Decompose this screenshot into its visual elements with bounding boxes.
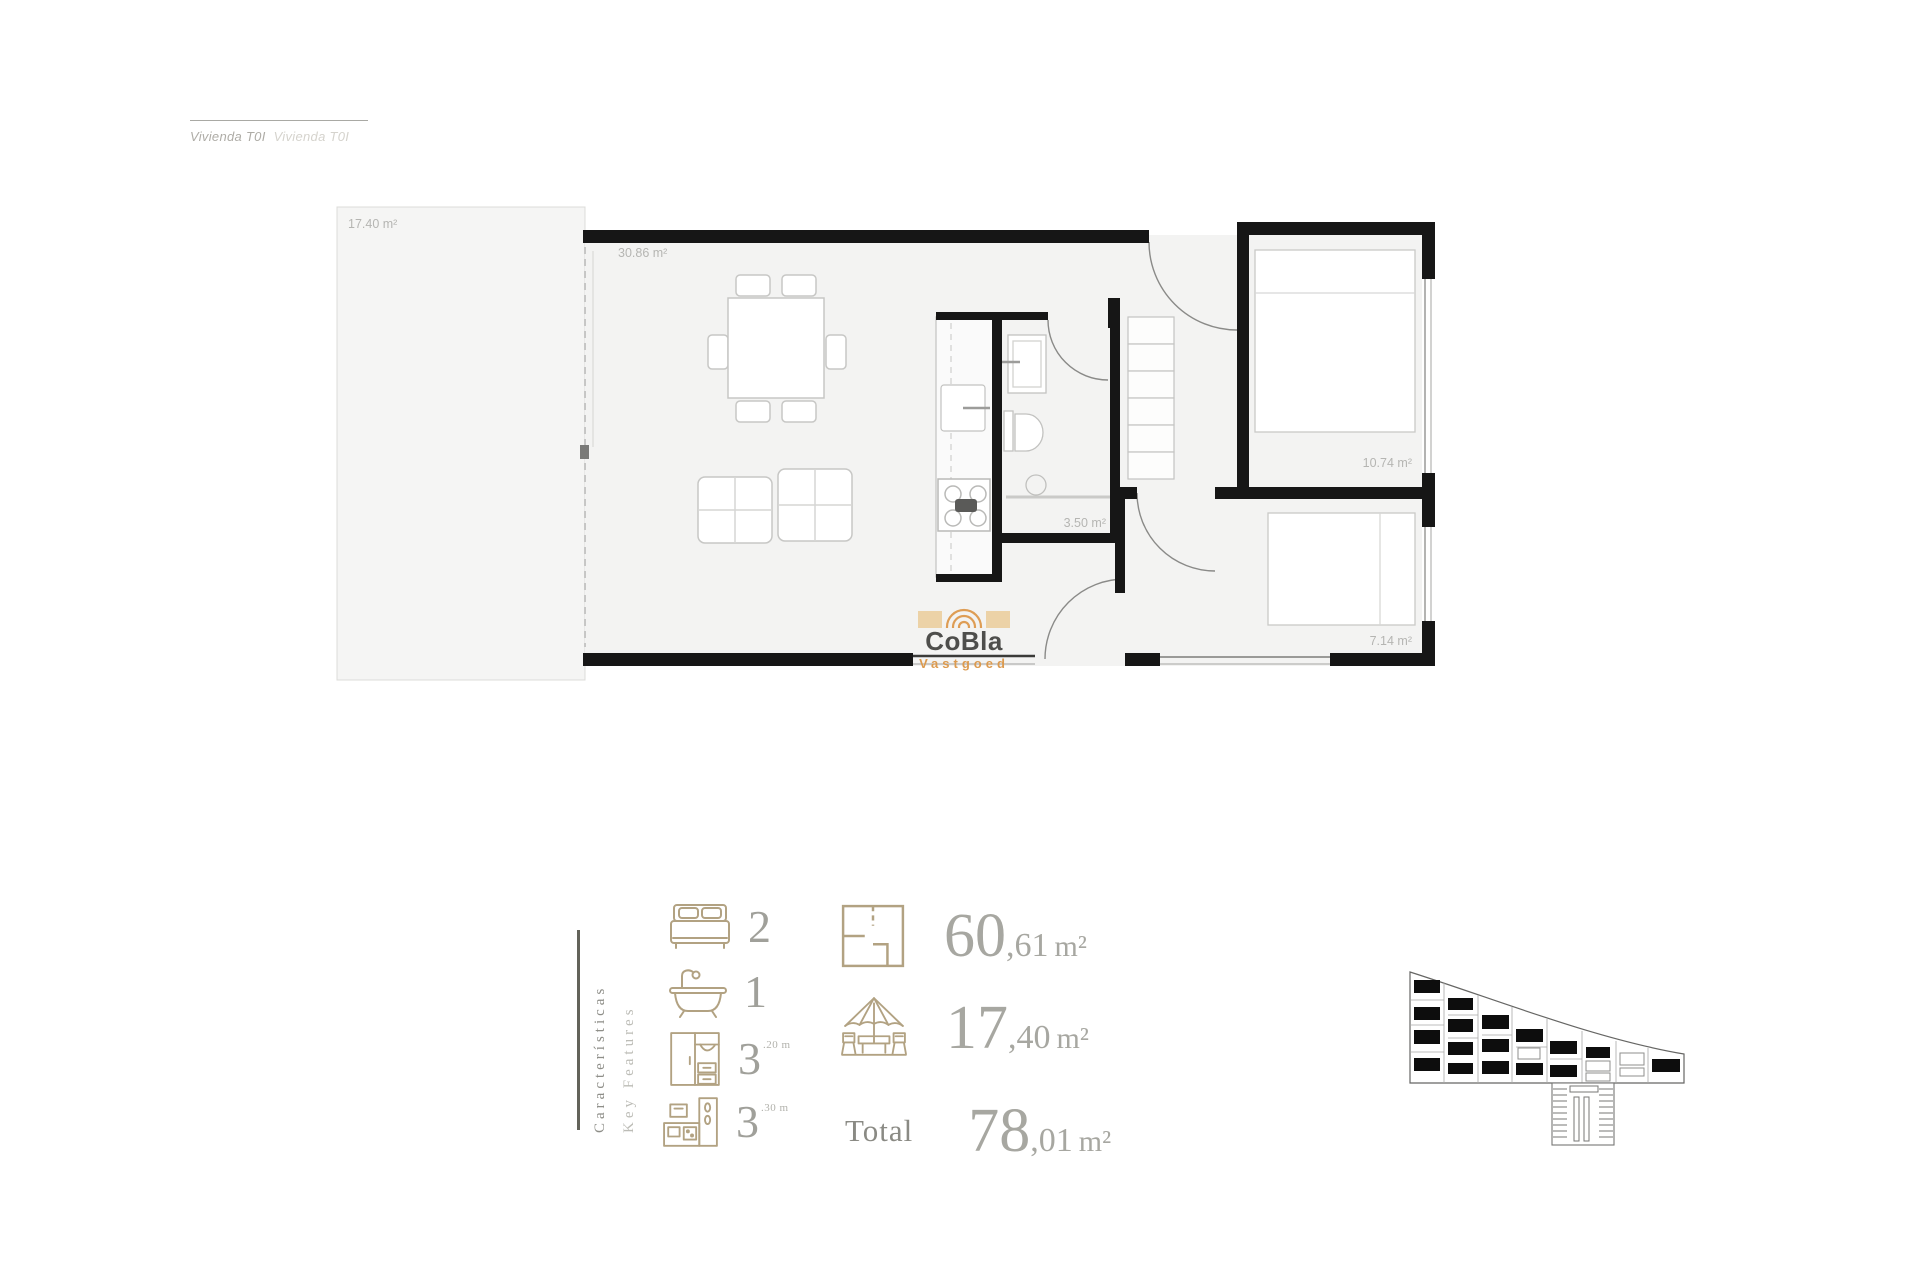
logo-spiral-icon <box>945 601 983 628</box>
terrace-parasol-icon <box>840 995 908 1061</box>
features-heading-en: Key Features <box>621 928 638 1133</box>
built-area-frac: ,61 <box>1006 927 1049 964</box>
terrace-room <box>337 207 585 680</box>
closet-shelves <box>1128 317 1174 479</box>
kitchen-count: 3.30 m <box>736 1099 789 1145</box>
feature-bedrooms: 2 <box>668 903 771 951</box>
page-title-es: Vivienda T0I <box>190 129 266 144</box>
feature-wardrobe: 3.20 m <box>668 1030 791 1088</box>
total-area-int: 78 <box>968 1097 1030 1165</box>
terrace-area-frac: ,40 <box>1008 1019 1051 1056</box>
bed-2 <box>1268 513 1415 625</box>
kitchen-value: 3 <box>736 1096 759 1147</box>
logo-tagline: Vastgoed <box>912 656 1016 671</box>
total-area-value: 78,01m² <box>968 1100 1111 1162</box>
kitchen-icon <box>662 1096 720 1148</box>
washbasin <box>1008 335 1046 393</box>
building-elevation-diagram <box>1400 955 1690 1155</box>
bedroom1-area-label: 10.74 m² <box>1363 456 1412 470</box>
wardrobe-dimension: .20 m <box>763 1039 791 1051</box>
toilet-bowl <box>1015 414 1043 451</box>
header: Vivienda T0I Vivienda T0I <box>190 120 368 144</box>
elevation-stairwell <box>1552 1083 1614 1145</box>
page-title-en: Vivienda T0I <box>274 129 350 144</box>
bedroom2-area-label: 7.14 m² <box>1370 634 1412 648</box>
bathrooms-count: 1 <box>744 969 767 1015</box>
floor-plan: 17.40 m² 30.86 m² 3.50 m² 10.74 m² 7.14 … <box>330 195 1480 705</box>
bath-icon <box>668 966 728 1018</box>
wardrobe-icon <box>668 1030 722 1088</box>
cobla-logo: CoBla Vastgoed <box>912 601 1016 671</box>
total-area-frac: ,01 <box>1030 1122 1073 1159</box>
features-heading-rule <box>577 930 580 1130</box>
total-area-unit: m² <box>1079 1125 1111 1158</box>
terrace-area-value: 17,40m² <box>946 997 1089 1059</box>
bathroom-area-label: 3.50 m² <box>1064 516 1106 530</box>
bed-icon <box>668 903 732 951</box>
kitchen-hob <box>938 479 990 531</box>
built-area-int: 60 <box>944 902 1006 970</box>
features-heading-es: Características <box>592 928 609 1133</box>
built-area-unit: m² <box>1055 930 1087 963</box>
page-title: Vivienda T0I Vivienda T0I <box>190 129 368 144</box>
total-area-row: Total 78,01m² <box>845 1100 1111 1162</box>
features-heading: Características Key Features <box>577 928 638 1133</box>
built-area-row: 60,61m² <box>840 903 1087 969</box>
floorplan-icon <box>840 903 906 969</box>
terrace-area-label: 17.40 m² <box>348 217 397 231</box>
built-area-value: 60,61m² <box>944 905 1087 967</box>
wardrobe-value: 3 <box>738 1033 761 1084</box>
bedrooms-count: 2 <box>748 904 771 950</box>
logo-brand: CoBla <box>912 628 1016 654</box>
feature-kitchen: 3.30 m <box>662 1096 789 1148</box>
wardrobe-count: 3.20 m <box>738 1036 791 1082</box>
toilet-tank <box>1004 411 1013 451</box>
terrace-area-unit: m² <box>1057 1022 1089 1055</box>
kitchen-counter <box>936 317 994 577</box>
living-area-label: 30.86 m² <box>618 246 667 260</box>
feature-bathrooms: 1 <box>668 966 767 1018</box>
terrace-area-row: 17,40m² <box>840 995 1089 1061</box>
header-divider <box>190 120 368 121</box>
total-label: Total <box>845 1113 913 1149</box>
bed-1 <box>1255 250 1415 432</box>
slider-handle-icon <box>580 445 589 459</box>
cobla-logo-icon <box>912 601 1016 628</box>
dining-table <box>728 298 824 398</box>
terrace-area-int: 17 <box>946 994 1008 1062</box>
kitchen-dimension: .30 m <box>761 1102 789 1114</box>
